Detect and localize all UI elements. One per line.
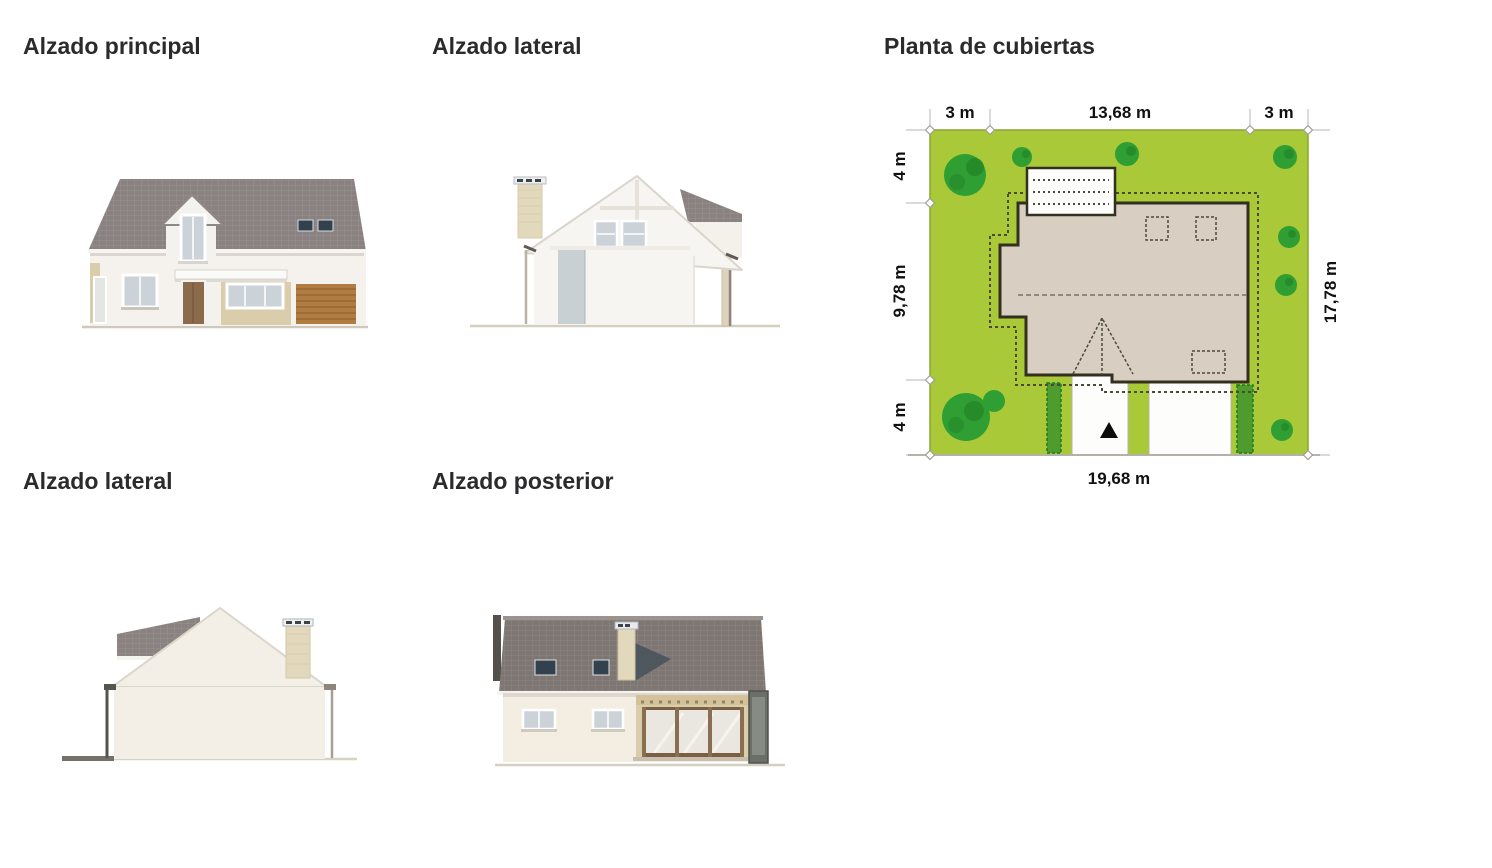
roof-plan-svg: 3 m 13,68 m 3 m 4 m 9,78 m 4 m 17,78 m 1… xyxy=(878,85,1348,505)
front-roof xyxy=(88,179,366,256)
garage-door xyxy=(295,283,357,325)
rear-elevation-svg xyxy=(483,585,798,780)
front-window-left xyxy=(121,275,159,310)
side-elevation-top-drawing xyxy=(450,158,800,348)
recessed-panel xyxy=(558,250,585,324)
front-elevation-drawing xyxy=(78,165,373,345)
tree-icon xyxy=(1278,226,1300,248)
stone-facade-section xyxy=(221,282,291,325)
side-elevation-bottom-drawing xyxy=(62,588,362,783)
page: Alzado principal Alzado lateral Planta d… xyxy=(0,0,1492,868)
dim-label-top-left: 3 m xyxy=(945,103,974,122)
dim-label-top-right: 3 m xyxy=(1264,103,1293,122)
tree-icon xyxy=(1115,142,1139,166)
title-side-elevation-bottom: Alzado lateral xyxy=(23,468,173,495)
rear-window-center xyxy=(591,710,625,732)
walkway xyxy=(1072,375,1128,455)
terrace-glazing xyxy=(633,695,753,761)
dim-label-left-middle: 9,78 m xyxy=(890,265,909,318)
front-elevation-svg xyxy=(78,165,373,345)
roof-plan-drawing: 3 m 13,68 m 3 m 4 m 9,78 m 4 m 17,78 m 1… xyxy=(878,85,1348,505)
front-door xyxy=(182,281,205,325)
barge-edge xyxy=(493,615,501,681)
terrace-pillar xyxy=(749,691,768,763)
dim-label-left-top: 4 m xyxy=(890,151,909,180)
rear-window-left xyxy=(521,710,557,732)
dim-label-right: 17,78 m xyxy=(1321,261,1340,323)
tree-icon xyxy=(1012,147,1032,167)
tree-icon xyxy=(1275,274,1297,296)
house-roof-outline xyxy=(1000,203,1248,382)
chimney xyxy=(514,177,546,238)
side-elevation-bottom-svg xyxy=(62,588,362,783)
tree-icon xyxy=(1271,419,1293,441)
front-side-door xyxy=(94,277,106,323)
title-rear-elevation: Alzado posterior xyxy=(432,468,613,495)
side-elevation-top-svg xyxy=(450,158,800,348)
tree-icon xyxy=(1273,145,1297,169)
title-roof-plan: Planta de cubiertas xyxy=(884,33,1095,60)
dim-label-bottom: 19,68 m xyxy=(1088,469,1150,488)
dim-label-top-center: 13,68 m xyxy=(1089,103,1151,122)
dim-label-left-bottom: 4 m xyxy=(890,402,909,431)
title-side-elevation-top: Alzado lateral xyxy=(432,33,582,60)
rear-elevation-drawing xyxy=(483,585,798,780)
title-front-elevation: Alzado principal xyxy=(23,33,201,60)
dormer-roof-plan xyxy=(1027,168,1115,215)
tree-icon xyxy=(944,154,986,196)
chimney xyxy=(283,619,313,678)
